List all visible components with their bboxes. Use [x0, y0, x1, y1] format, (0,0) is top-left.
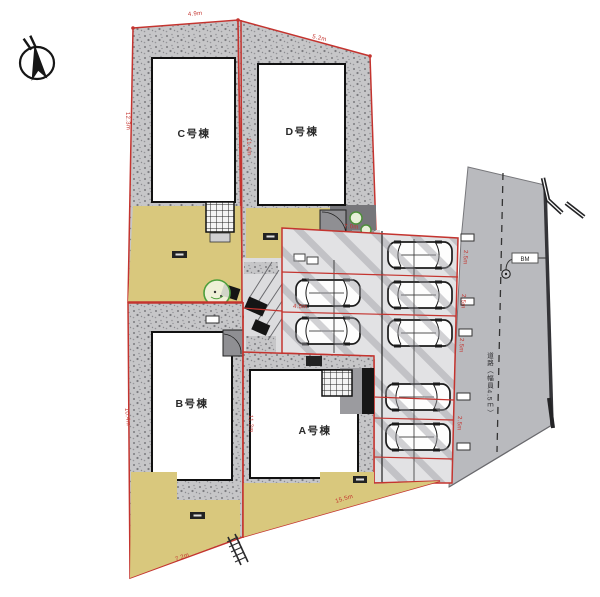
- road-surface: [449, 167, 552, 487]
- building-d-label: D号棟: [285, 125, 318, 138]
- porch-c: [206, 202, 234, 232]
- plot-b: B号棟: [128, 303, 243, 578]
- dim-label: 2.5m: [455, 416, 462, 431]
- building-b-label: B号棟: [175, 397, 208, 410]
- porch-a: [322, 370, 352, 396]
- shrub-icon: [350, 212, 362, 224]
- dim-label: 11.4m: [245, 138, 252, 156]
- dim-label: 7.0m: [344, 224, 359, 231]
- dim-label: 4.5m: [293, 304, 308, 310]
- site-plan-canvas: BM 道路（幅員4.5ｍ） C号棟 D号棟: [0, 0, 600, 597]
- benchmark-label: BM: [521, 257, 530, 263]
- entry-band: [362, 368, 374, 414]
- plot-c: C号棟: [128, 20, 242, 302]
- dim-label: 11.2m: [247, 415, 254, 433]
- north-arrow-compass: [20, 34, 54, 81]
- dim-label: 10.4m: [123, 408, 131, 427]
- dim-label: 12.3m: [124, 112, 131, 130]
- road: BM 道路（幅員4.5ｍ）: [449, 167, 584, 487]
- dim-label: 4.9m: [188, 11, 203, 18]
- dim-label: 2.5m: [459, 294, 466, 309]
- dim-label: 2.5m: [457, 338, 464, 353]
- building-a-label: A号棟: [298, 424, 331, 437]
- site-plan-drawing: BM 道路（幅員4.5ｍ） C号棟 D号棟: [0, 0, 600, 597]
- building-c-label: C号棟: [177, 127, 210, 140]
- dim-label: 2.5m: [461, 250, 468, 265]
